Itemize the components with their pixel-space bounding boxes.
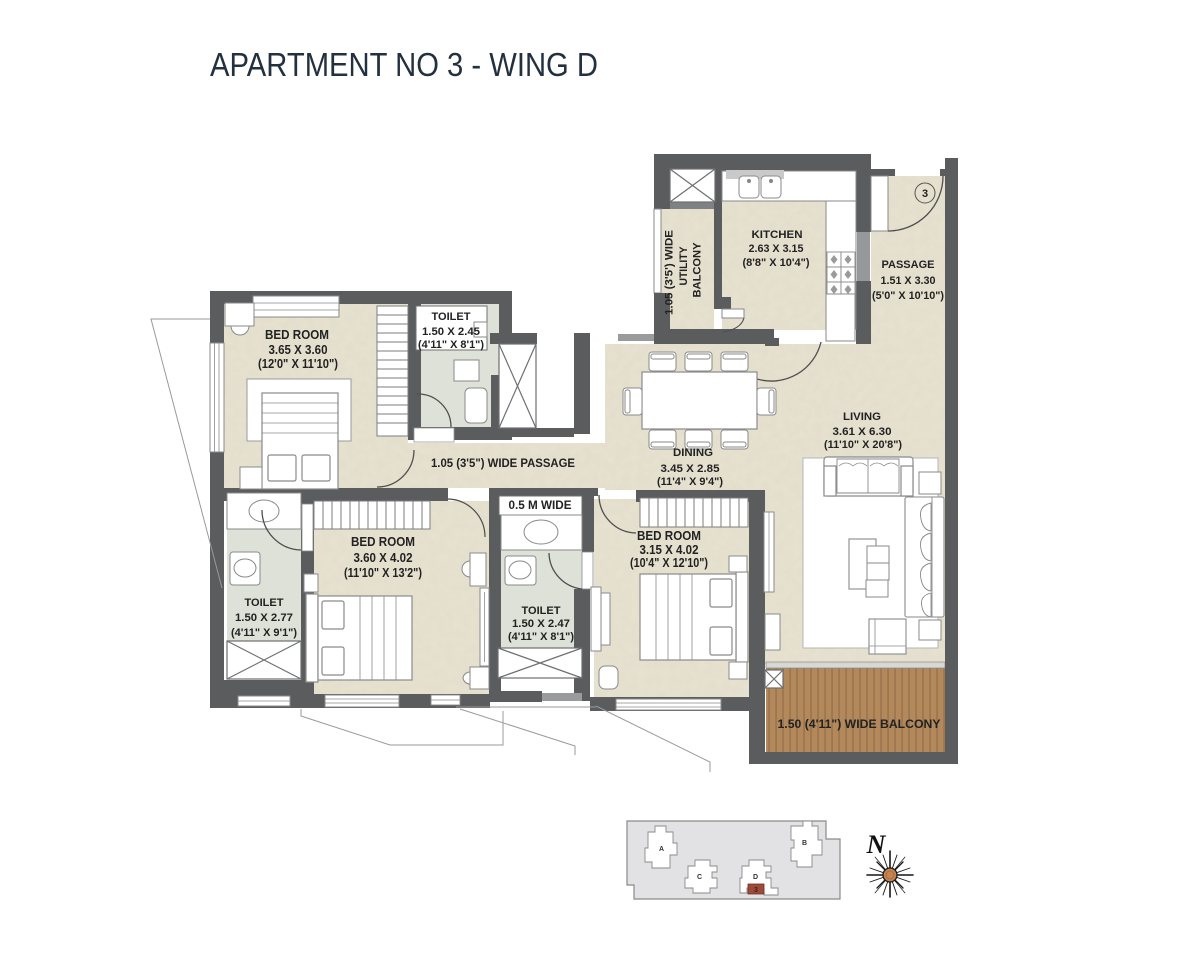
svg-text:TOILET: TOILET	[432, 311, 471, 323]
svg-text:1.05 (3'5') WIDE: 1.05 (3'5') WIDE	[664, 230, 676, 315]
svg-text:KITCHEN: KITCHEN	[752, 229, 803, 241]
svg-text:APARTMENT NO 3 - WING D: APARTMENT NO 3 - WING D	[210, 46, 598, 83]
svg-text:2.63 X 3.15: 2.63 X 3.15	[749, 243, 805, 255]
svg-text:D: D	[753, 874, 758, 881]
svg-text:N: N	[866, 830, 887, 859]
svg-text:(4'11" X 9'1"): (4'11" X 9'1")	[231, 627, 297, 639]
svg-text:A: A	[659, 846, 664, 853]
svg-text:3.61 X 6.30: 3.61 X 6.30	[833, 426, 892, 438]
svg-text:(4'11" X 8'1"): (4'11" X 8'1")	[508, 631, 574, 643]
svg-text:0.5 M WIDE: 0.5 M WIDE	[509, 500, 572, 512]
svg-text:(11'4" X 9'4"): (11'4" X 9'4")	[657, 476, 723, 488]
svg-text:1.50 X 2.47: 1.50 X 2.47	[512, 618, 570, 630]
svg-text:1.50 X 2.77: 1.50 X 2.77	[235, 612, 293, 624]
svg-text:1.51 X 3.30: 1.51 X 3.30	[881, 275, 936, 287]
svg-text:3.65 X 3.60: 3.65 X 3.60	[269, 343, 328, 357]
svg-text:PASSAGE: PASSAGE	[882, 259, 935, 271]
svg-text:1.50 (4'11") WIDE BALCONY: 1.50 (4'11") WIDE BALCONY	[778, 719, 941, 731]
svg-text:1.50 X 2.45: 1.50 X 2.45	[422, 326, 481, 338]
svg-text:(4'11" X 8'1"): (4'11" X 8'1")	[418, 339, 484, 351]
svg-text:UTILITY: UTILITY	[678, 246, 690, 286]
svg-text:3.15 X 4.02: 3.15 X 4.02	[640, 543, 699, 557]
svg-text:3.45 X 2.85: 3.45 X 2.85	[661, 463, 721, 475]
svg-text:3.60 X 4.02: 3.60 X 4.02	[354, 551, 413, 565]
svg-text:(8'8" X 10'4"): (8'8" X 10'4")	[743, 257, 810, 269]
svg-text:(5'0" X 10'10"): (5'0" X 10'10")	[872, 290, 944, 302]
svg-text:BALCONY: BALCONY	[692, 242, 704, 298]
svg-text:TOILET: TOILET	[522, 605, 561, 617]
svg-text:3: 3	[754, 887, 758, 894]
svg-text:BED ROOM: BED ROOM	[637, 528, 701, 543]
svg-text:(10'4" X 12'10"): (10'4" X 12'10")	[630, 556, 708, 570]
svg-text:BED ROOM: BED ROOM	[351, 534, 415, 549]
svg-text:3: 3	[922, 188, 928, 200]
svg-text:TOILET: TOILET	[245, 597, 284, 609]
svg-text:(11'10" X 13'2"): (11'10" X 13'2")	[344, 566, 422, 580]
svg-text:C: C	[697, 874, 702, 881]
svg-text:(12'0" X 11'10"): (12'0" X 11'10")	[258, 357, 338, 371]
svg-text:BED ROOM: BED ROOM	[265, 327, 329, 342]
svg-text:LIVING: LIVING	[843, 411, 881, 423]
svg-text:1.05 (3'5") WIDE PASSAGE: 1.05 (3'5") WIDE PASSAGE	[431, 458, 575, 470]
svg-text:B: B	[802, 840, 807, 847]
svg-text:DINING: DINING	[673, 447, 713, 459]
svg-text:(11'10" X 20'8"): (11'10" X 20'8")	[824, 439, 902, 451]
